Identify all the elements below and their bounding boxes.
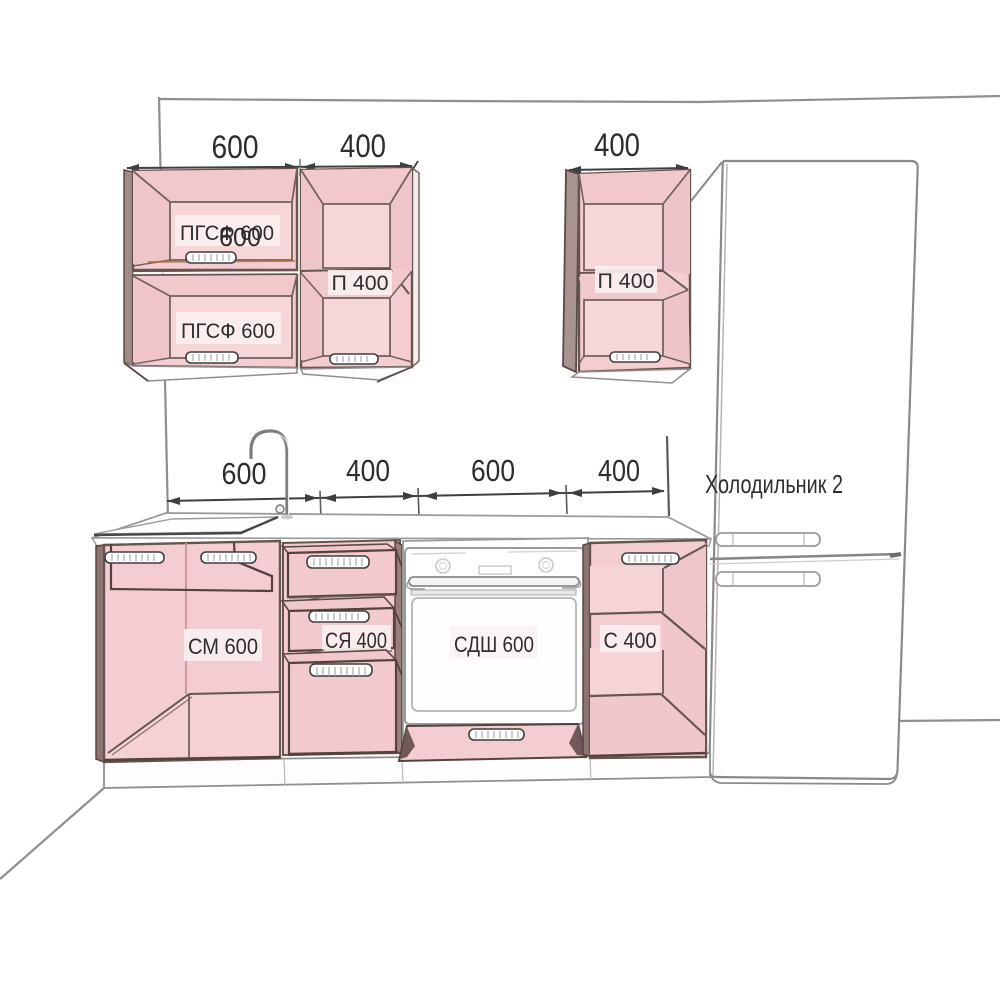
svg-text:400: 400 <box>340 128 386 164</box>
svg-text:600: 600 <box>219 222 261 252</box>
svg-text:СМ 600: СМ 600 <box>188 634 258 659</box>
svg-text:600: 600 <box>212 129 259 165</box>
svg-text:С 400: С 400 <box>604 628 657 653</box>
svg-text:СЯ 400: СЯ 400 <box>325 628 387 653</box>
svg-text:СДШ 600: СДШ 600 <box>454 632 534 657</box>
svg-text:ПГСФ 600: ПГСФ 600 <box>181 319 275 343</box>
svg-text:600: 600 <box>222 456 267 491</box>
svg-text:400: 400 <box>598 453 640 488</box>
svg-text:600: 600 <box>471 453 515 488</box>
svg-text:400: 400 <box>346 453 390 488</box>
svg-text:Холодильник 2: Холодильник 2 <box>705 469 843 499</box>
svg-text:П 400: П 400 <box>598 269 655 293</box>
svg-text:П 400: П 400 <box>332 271 389 295</box>
svg-text:400: 400 <box>594 127 640 163</box>
